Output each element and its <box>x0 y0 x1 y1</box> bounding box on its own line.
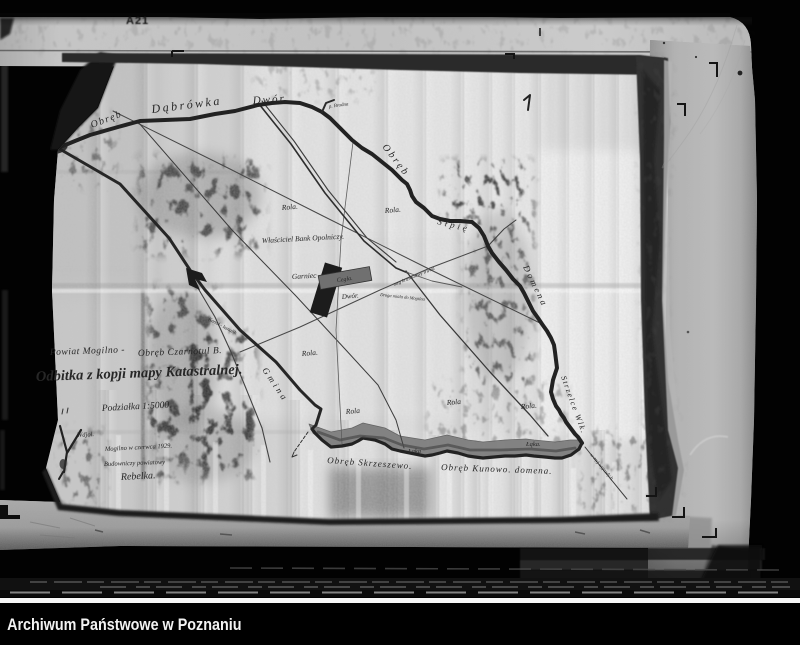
svg-text:Rola.: Rola. <box>383 205 401 215</box>
svg-text:Rola.: Rola. <box>300 348 318 358</box>
svg-text:Rola.: Rola. <box>280 202 298 212</box>
svg-text:Rola: Rola <box>445 397 461 407</box>
svg-text:Rola.: Rola. <box>519 401 537 411</box>
svg-text:Archiwum Państwowe w Poznaniu: Archiwum Państwowe w Poznaniu <box>7 616 241 634</box>
svg-text:Wdjol.: Wdjol. <box>77 431 95 439</box>
svg-text:A21: A21 <box>126 15 149 27</box>
svg-text:Rebelka.: Rebelka. <box>120 470 156 483</box>
svg-text:Łąka: Łąka <box>407 448 421 455</box>
svg-text:Dwór.: Dwór. <box>340 292 359 302</box>
svg-text:Garniec: Garniec <box>292 271 318 281</box>
svg-text:Łąka.: Łąka. <box>525 441 541 448</box>
svg-text:Rola: Rola <box>344 406 360 416</box>
